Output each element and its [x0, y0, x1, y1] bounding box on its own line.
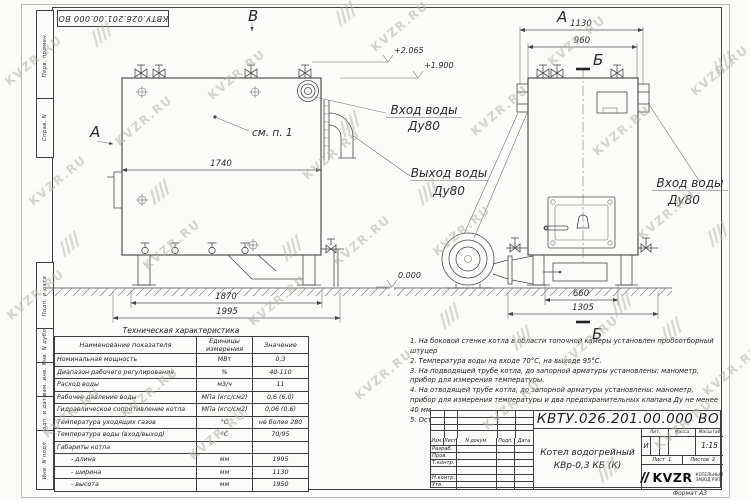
dim-side-base-inner: 660: [573, 289, 589, 299]
scanned-drawing-sheet: { "watermark": { "text": "KVZR.RU" }, "f…: [0, 0, 750, 500]
front-top-valves: [135, 65, 311, 78]
sheets-total: Листов 2: [683, 456, 724, 464]
side-drain-valve: [321, 239, 344, 287]
spec-row: Гидравлическое сопротивление котлаМПа (к…: [55, 404, 309, 417]
spec-row: Номинальная мощностьМВт0,3: [55, 354, 309, 367]
spec-row: Рабочее давление водыМПа (кгс/см2)0,6 (6…: [55, 391, 309, 404]
spec-cell: Номинальная мощность: [55, 354, 197, 367]
centre-marks: [136, 86, 261, 251]
front-flange: [638, 84, 649, 112]
company-logo: KVZR КОТЕЛЬНЫЙ ЗАВОД РЭП: [642, 465, 723, 489]
see-note-label: см. п. 1: [252, 127, 293, 139]
note-item: 1. На боковой стенке котла в области топ…: [410, 337, 720, 357]
blower-fan: [442, 113, 533, 288]
elevation-ground: 0.000: [398, 271, 421, 280]
section-b-top: Б: [593, 51, 603, 69]
furnace-door: [544, 197, 615, 248]
spec-table-title: Техническая характеристика: [54, 326, 308, 335]
spec-cell: - длина: [55, 454, 197, 467]
rear-flange: [517, 84, 528, 112]
callouts: см. п. 1 Вход воды Ду80 Выход воды Ду80 …: [213, 97, 728, 207]
elevation-body-top: +1.900: [424, 61, 454, 70]
format-note: Формат А3: [650, 490, 730, 497]
spec-header: Единицы измерения: [197, 337, 253, 354]
spec-cell: МПа (кгс/см2): [197, 391, 253, 404]
spec-cell: мм: [197, 454, 253, 467]
upper-hatch: [597, 92, 627, 113]
spec-header-row: Наименование показателя Единицы измерени…: [55, 337, 309, 354]
spec-cell: не более 280: [253, 416, 309, 429]
spec-cell: м3/ч: [197, 379, 253, 392]
spec-cell: Рабочее давление воды: [55, 391, 197, 404]
spec-row: Габариты котла: [55, 441, 309, 454]
spec-cell: 0,3: [253, 354, 309, 367]
spec-cell: 40-110: [253, 366, 309, 379]
dim-front-overall: 1995: [216, 307, 238, 317]
side-view-title: А: [556, 8, 567, 26]
side-top-valves: [537, 65, 623, 78]
inlet-dn-side: Ду80: [667, 193, 700, 207]
spec-cell: МВт: [197, 354, 253, 367]
mass-value: [669, 437, 696, 455]
change-record-grid: [431, 411, 533, 438]
spec-cell: мм: [197, 466, 253, 479]
spec-cell: Температура воды (вход/выход): [55, 429, 197, 442]
spec-cell: 11: [253, 379, 309, 392]
dim-side-inner: 960: [574, 36, 590, 46]
inlet-label-front: Вход воды: [391, 103, 458, 117]
sheet-number: Лист 1: [642, 456, 683, 464]
dim-front-base: 1870: [215, 292, 237, 302]
front-bottom-valves: [141, 239, 345, 287]
note-item: 2. Температура воды на входе 70°С, на вы…: [410, 357, 720, 367]
mass-label: Масса: [669, 429, 696, 436]
front-view: [107, 65, 356, 287]
spec-header: Значение: [253, 337, 309, 354]
spec-cell: Габариты котла: [55, 441, 197, 454]
spec-cell: [197, 441, 253, 454]
spec-header: Наименование показателя: [55, 337, 197, 354]
inlet-flange-front: [298, 81, 319, 102]
spec-cell: мм: [197, 479, 253, 492]
spec-row: - высотамм1950: [55, 479, 309, 492]
dim-side-top: 1130: [570, 19, 592, 29]
inlet-dn-front: Ду80: [407, 119, 440, 133]
lit-label: Лит.: [642, 429, 669, 436]
spec-row: Температура воды (вход/выход)°С70/95: [55, 429, 309, 442]
spec-cell: °С: [197, 429, 253, 442]
kvzr-logo-icon: [640, 472, 652, 483]
lit-value: И: [642, 437, 651, 455]
spec-cell: - высота: [55, 479, 197, 492]
spec-cell: Температура уходящих газов: [55, 416, 197, 429]
spec-cell: 70/95: [253, 429, 309, 442]
spec-cell: %: [197, 366, 253, 379]
inlet-label-side: Вход воды: [657, 176, 724, 190]
title-block-doc-number: КВТУ.026.201.00.000 ВО: [533, 411, 722, 429]
view-b-arrow-label: В: [248, 7, 258, 25]
title-block-signature-rows: Разраб. Пров. Т.контр. Н.контр. Утв.: [431, 446, 533, 489]
product-name: Котел водогрейный КВр-0,3 КБ (К): [533, 429, 641, 489]
elevation-valves: +2.065: [394, 46, 424, 55]
spec-cell: 0,06 (0,6): [253, 404, 309, 417]
spec-cell: °С: [197, 416, 253, 429]
spec-cell: Гидравлическое сопротивление котла: [55, 404, 197, 417]
spec-cell: Расход воды: [55, 379, 197, 392]
scale-value: 1:15: [696, 437, 723, 455]
dim-side-base: 1305: [572, 303, 594, 313]
title-block: КВТУ.026.201.00.000 ВО Изм. Лист N докум…: [430, 410, 721, 488]
spec-row: - ширинамм1130: [55, 466, 309, 479]
spec-cell: 0,6 (6,0): [253, 391, 309, 404]
spec-cell: 1950: [253, 479, 309, 492]
spec-row: Диапазон рабочего регулирования%40-110: [55, 366, 309, 379]
kvzr-logo-text: KVZR: [652, 470, 692, 485]
spec-table: Наименование показателя Единицы измерени…: [54, 336, 309, 492]
dimensions: 1740 1870 1995 1130 960 660 1305: [113, 19, 658, 323]
spec-cell: 1995: [253, 454, 309, 467]
spec-row: Расход водым3/ч11: [55, 379, 309, 392]
spec-cell: МПа (кгс/см2): [197, 404, 253, 417]
spec-cell: - ширина: [55, 466, 197, 479]
spec-cell: [253, 441, 309, 454]
outlet-label: Выход воды: [411, 166, 487, 180]
side-supports: [527, 255, 638, 285]
outlet-assembly: [324, 100, 356, 160]
spec-cell: 1130: [253, 466, 309, 479]
view-a-arrow-label: А: [89, 123, 100, 141]
title-block-columns: Изм. Лист N докум. Подп. Дата: [431, 438, 533, 446]
spec-row: Температура уходящих газов°Сне более 280: [55, 416, 309, 429]
scale-label: Масштаб: [696, 429, 723, 436]
spec-row: - длинамм1995: [55, 454, 309, 467]
title-block-right: Лит. Масса Масштаб И 1:15 Лист 1 Листов …: [641, 429, 722, 489]
dim-front-top: 1740: [210, 159, 232, 169]
spec-cell: Диапазон рабочего регулирования: [55, 366, 197, 379]
outlet-dn: Ду80: [432, 184, 465, 198]
note-item: 3. На подводящей трубе котла, до запорно…: [410, 367, 720, 387]
